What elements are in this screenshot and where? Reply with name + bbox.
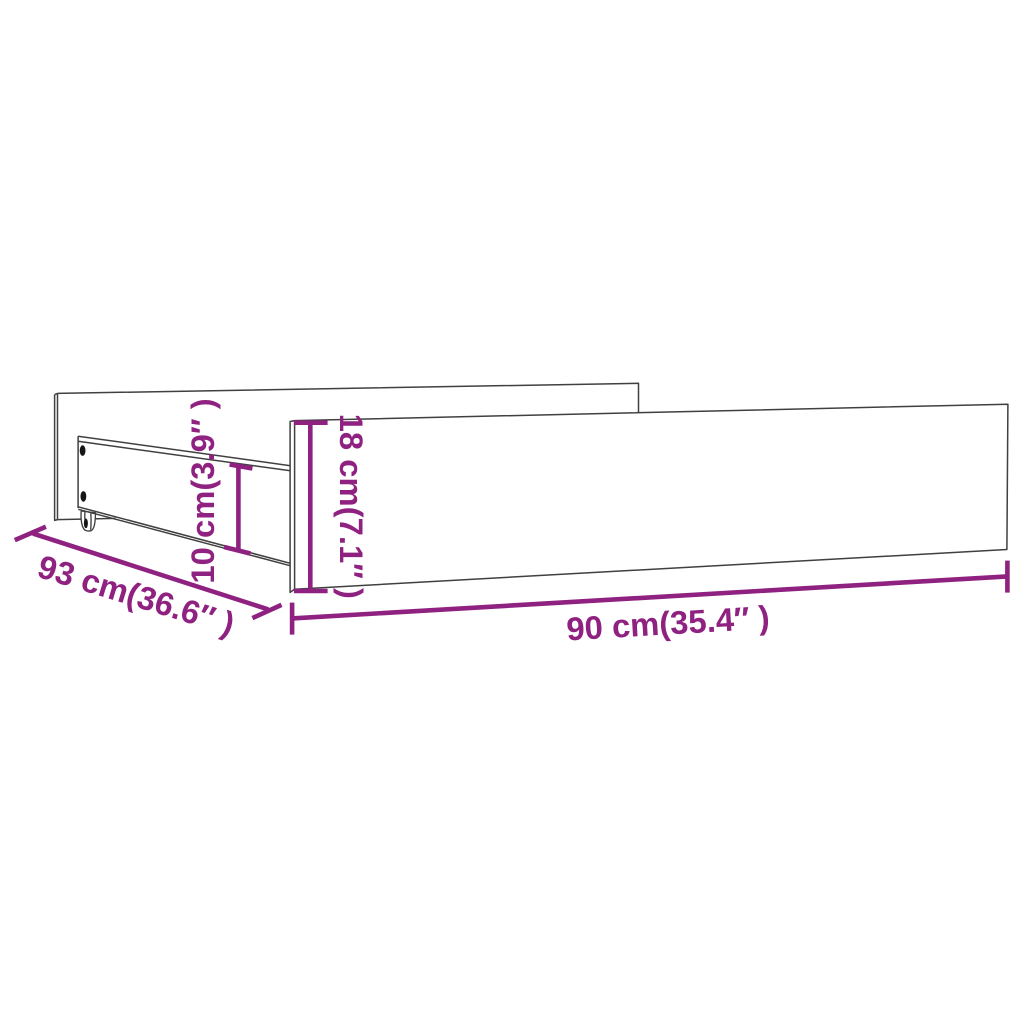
svg-text:10 cm(3.9″ ): 10 cm(3.9″ ) [184,398,221,583]
svg-text:18 cm(7.1″ ): 18 cm(7.1″ ) [333,414,370,599]
